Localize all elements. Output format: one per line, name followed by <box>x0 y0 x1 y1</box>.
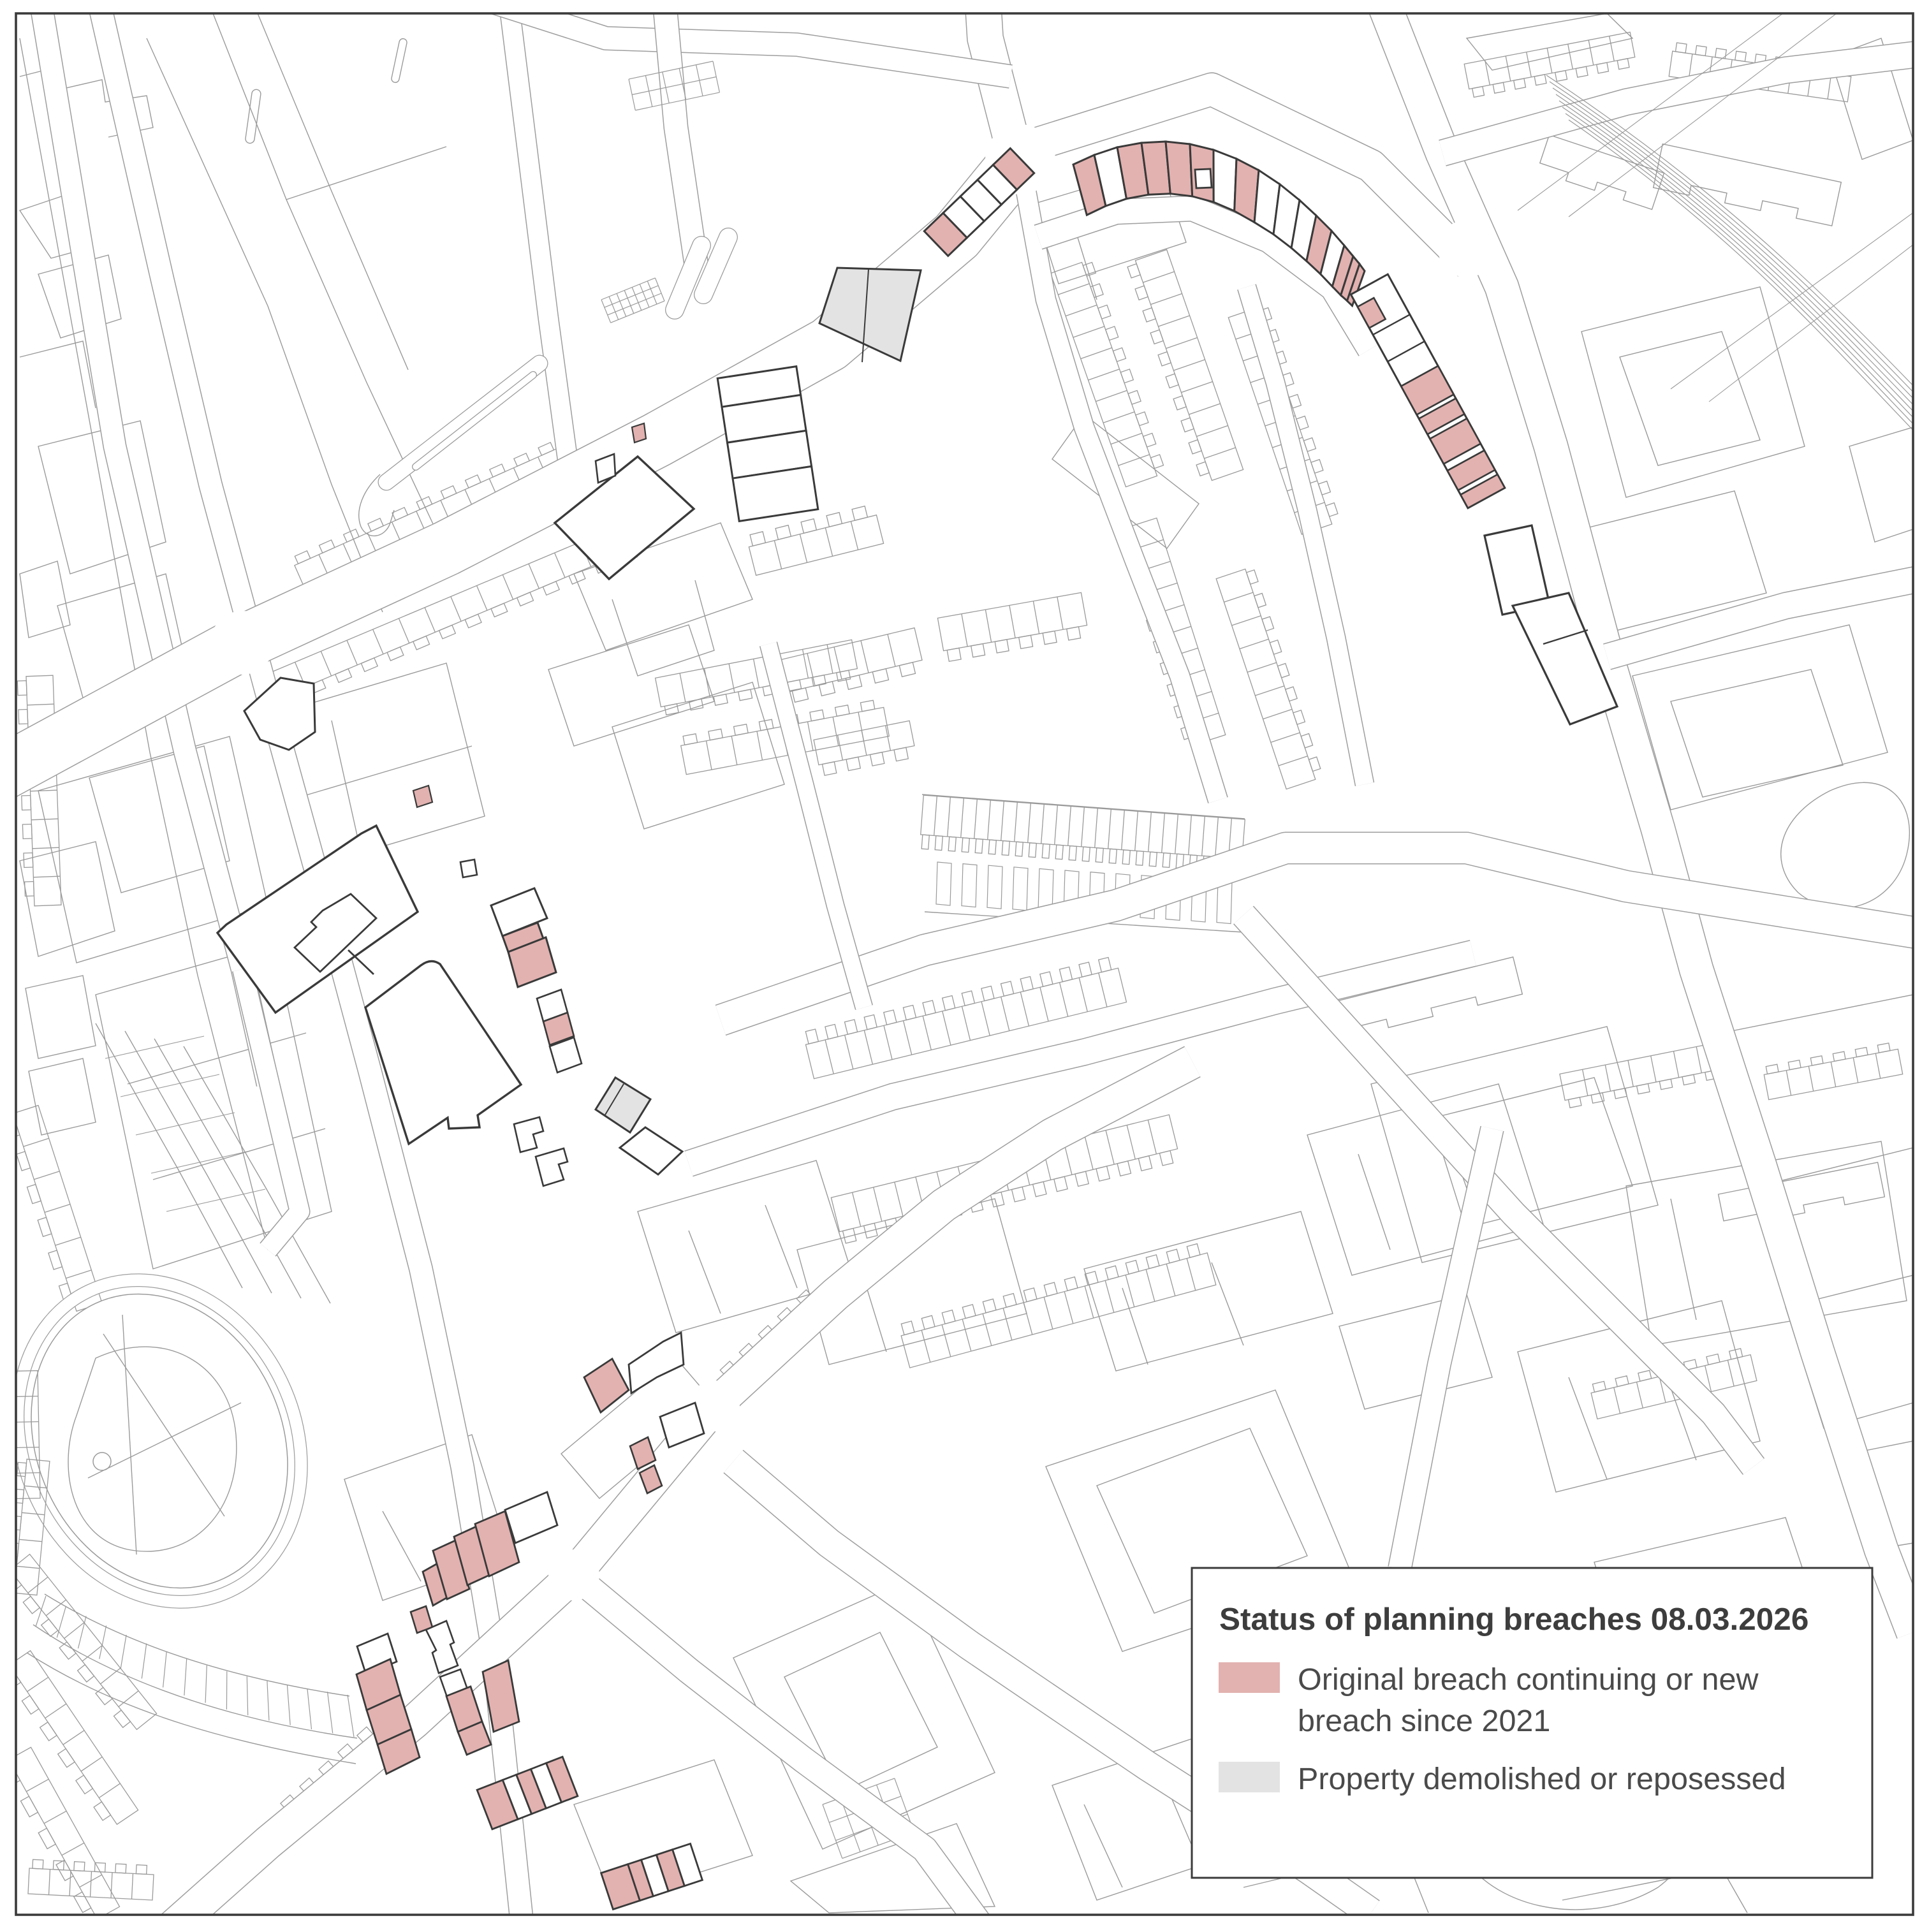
svg-text:breach since 2021: breach since 2021 <box>1298 1704 1550 1738</box>
svg-text:Original breach continuing or: Original breach continuing or new <box>1298 1662 1759 1697</box>
svg-text:Status of planning breaches 08: Status of planning breaches 08.03.2026 <box>1219 1602 1808 1637</box>
svg-text:Property demolished or reposes: Property demolished or reposessed <box>1298 1762 1786 1796</box>
